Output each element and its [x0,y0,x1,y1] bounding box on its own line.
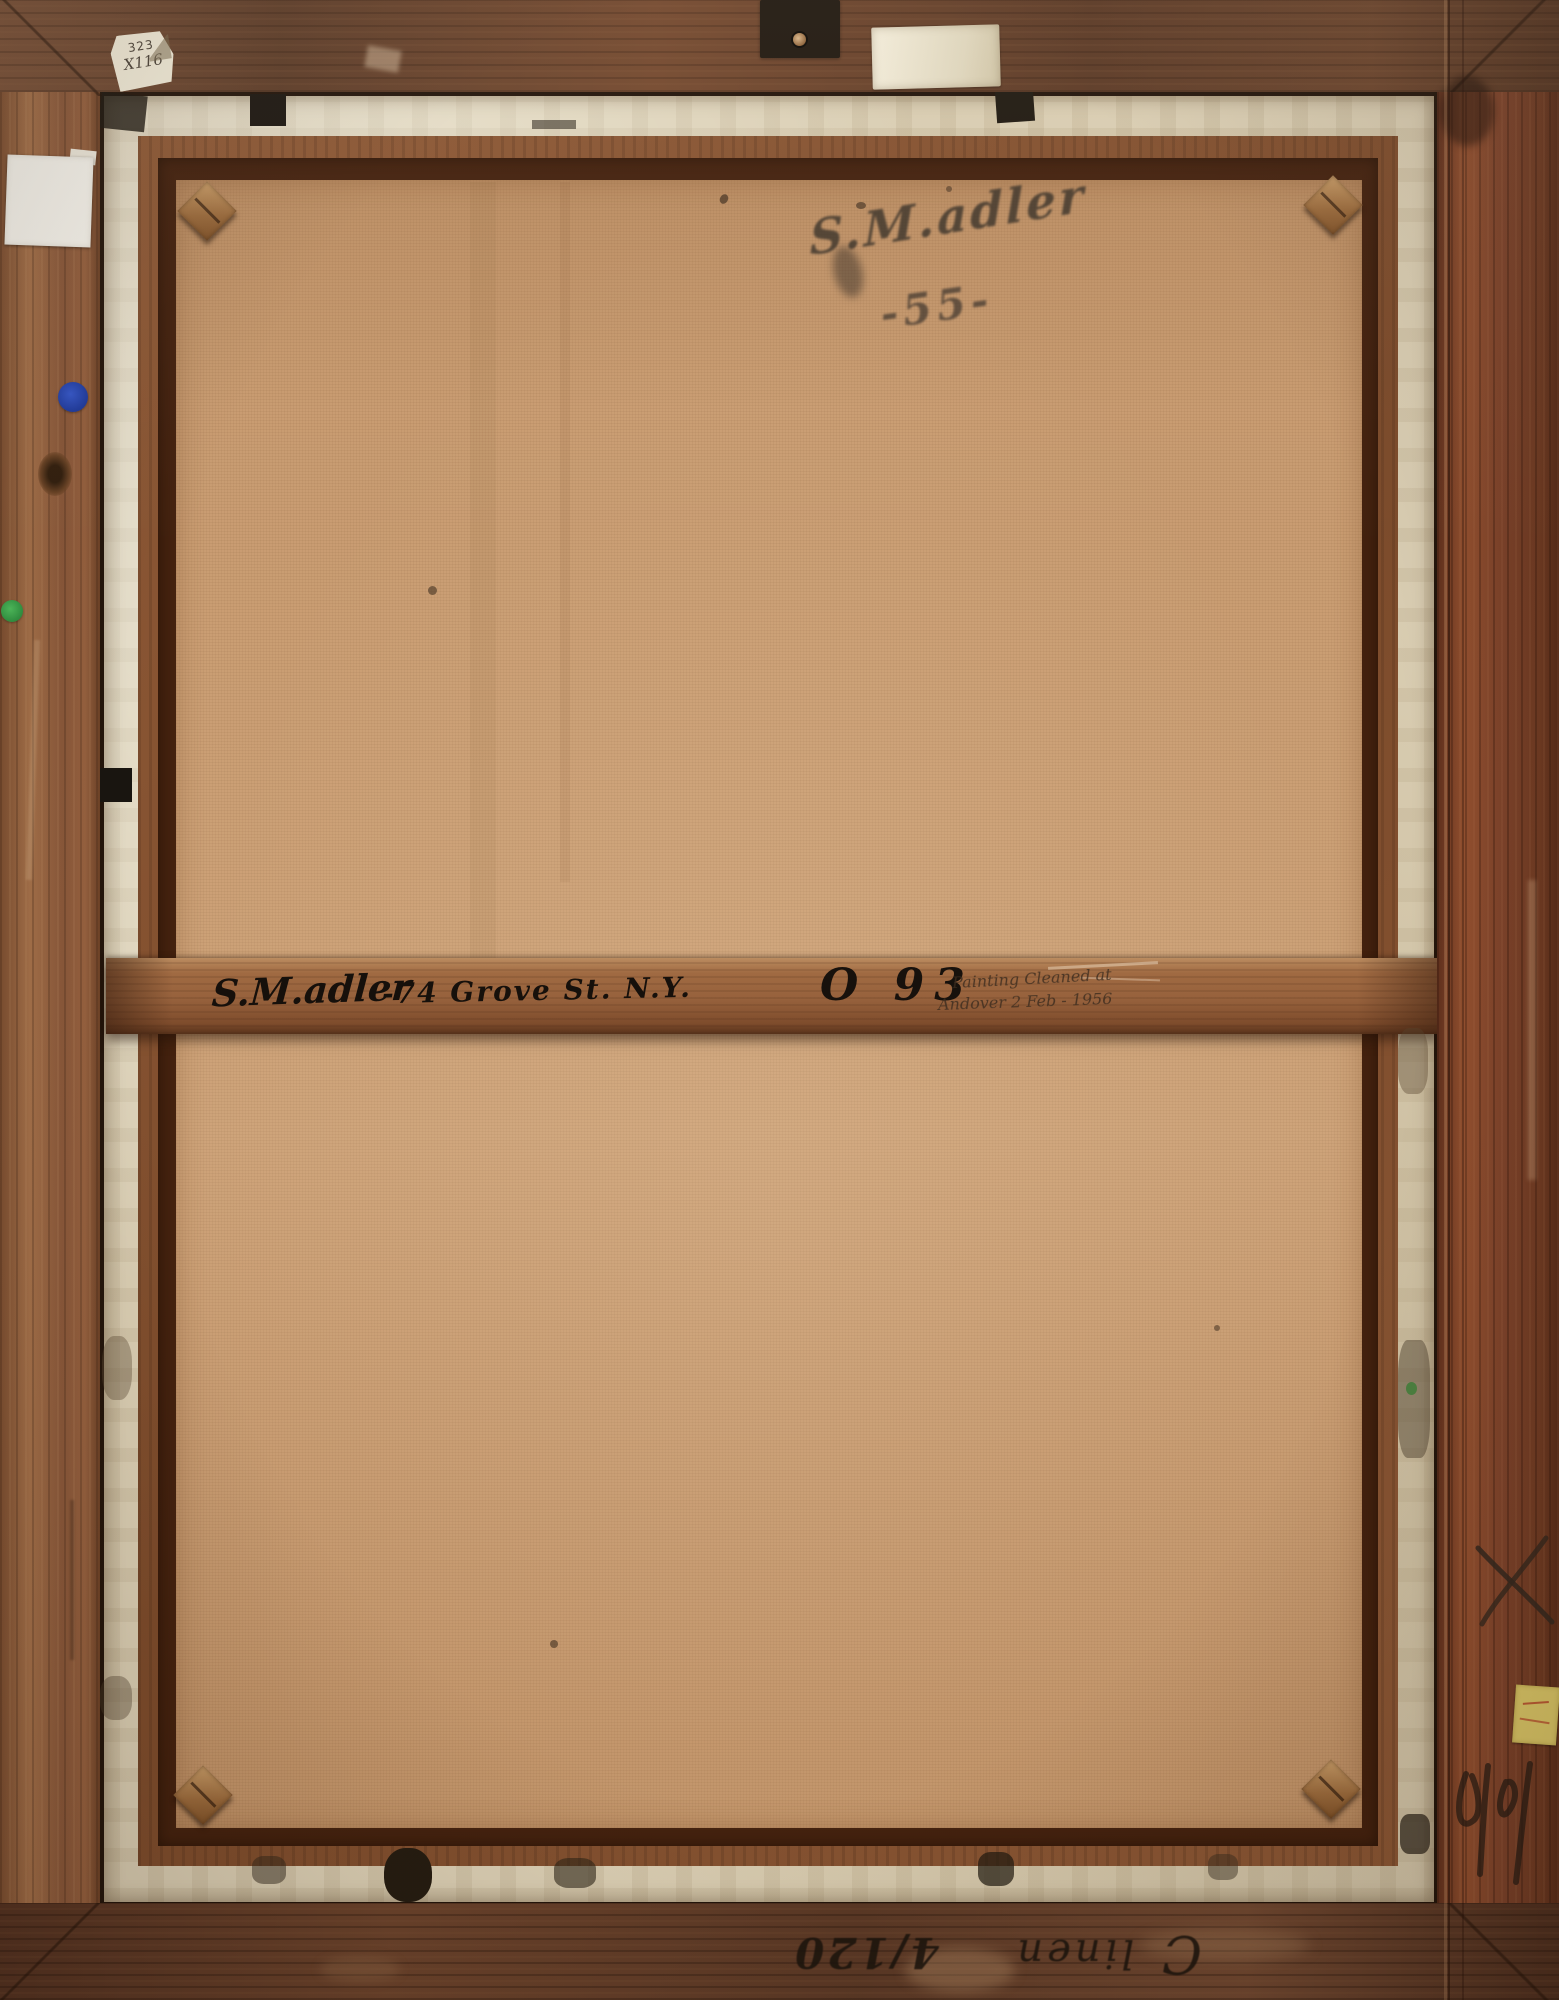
blank-white-label [871,24,1001,89]
bottom-word-linen: linen [1013,1930,1134,1976]
red-scribble [1523,1701,1549,1705]
pencil-x-mark [1468,1532,1559,1628]
key-slot [190,1782,216,1808]
black-patch-label [760,0,840,58]
blue-dot-sticker [58,382,88,412]
wood-knot [38,452,72,496]
label-fold-shadow [146,34,171,61]
green-dot-sticker [1,600,23,622]
red-scribble [1520,1718,1550,1725]
bottom-frame-inscription: C linen 4/120 [606,1914,1202,1992]
white-square-sticker [4,155,93,248]
yellow-inventory-label [1512,1685,1559,1746]
key-slot [1320,192,1346,218]
painting-verso-photo: S.M.adler -55- S.M.adler -74 Grove St. N… [0,0,1559,2000]
bottom-letter: C [1162,1923,1202,1983]
key-slot [194,198,220,224]
charcoal-scrawl [1444,1756,1548,1892]
bottom-number: 4/120 [792,1929,939,1978]
key-slot [1318,1776,1344,1802]
nail-hole [793,33,806,46]
frame-left [0,0,100,2000]
crossbar-address: -74 Grove St. N.Y. [382,971,692,1010]
